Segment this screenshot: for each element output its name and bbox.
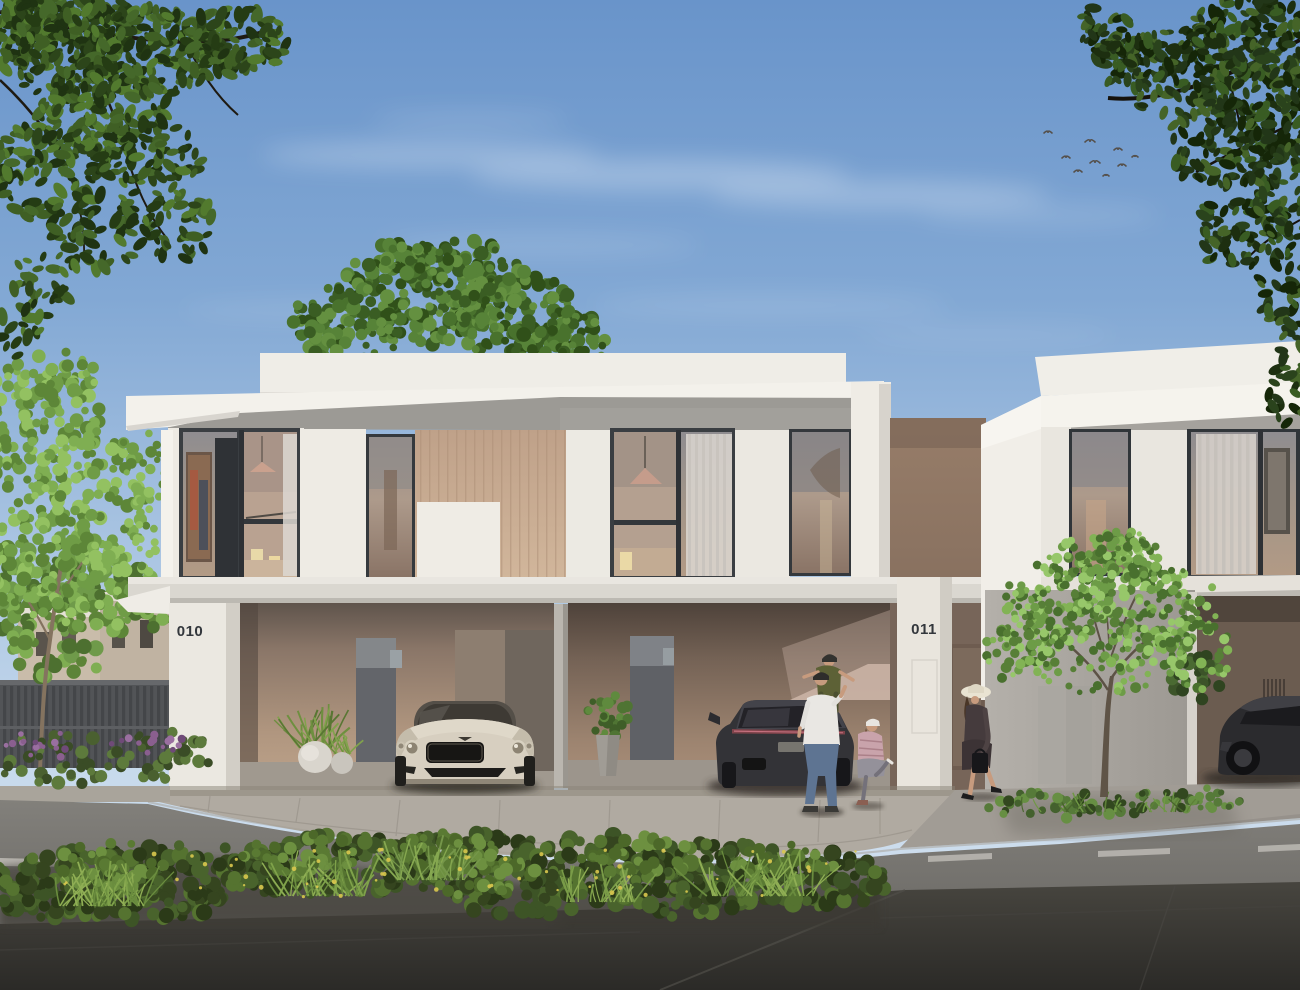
svg-text:010: 010 — [177, 623, 204, 640]
svg-text:011: 011 — [911, 621, 937, 638]
